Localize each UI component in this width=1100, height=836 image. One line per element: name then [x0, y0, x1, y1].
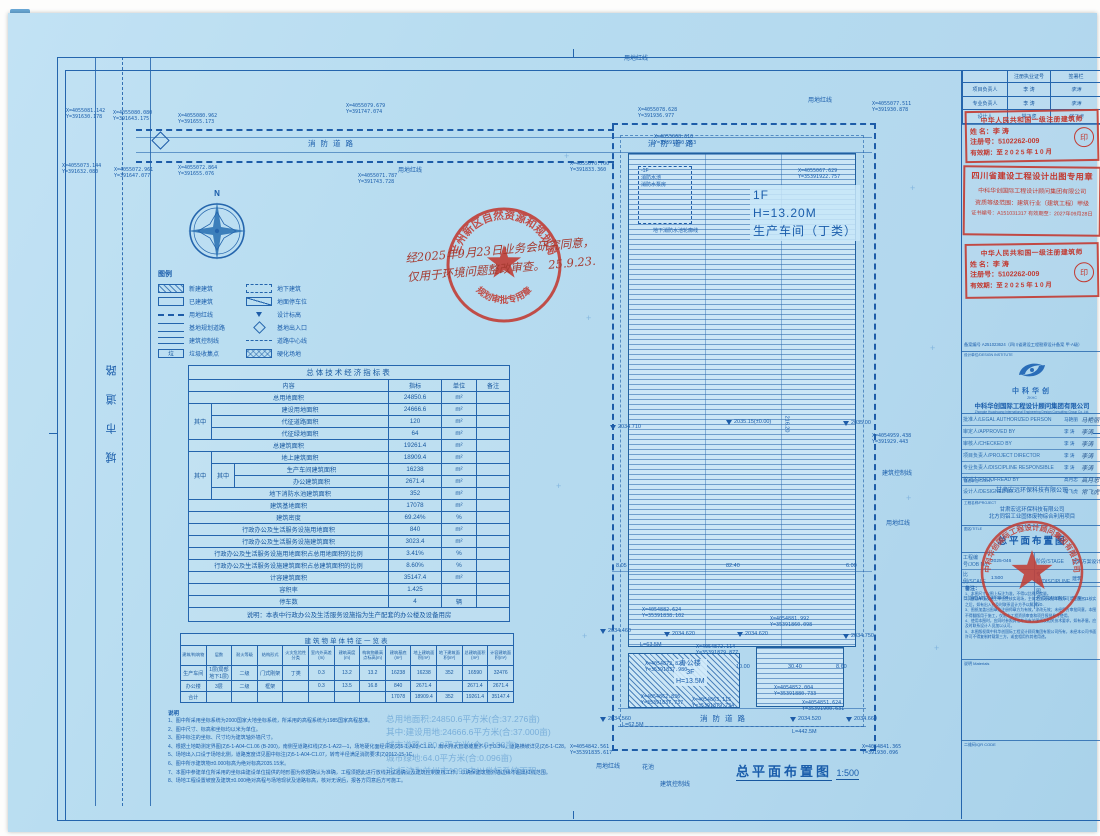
indicators-table: 总体技术经济指标表 内容 指标 单位 备注 总用地面积24850.6m² 其中建… — [188, 365, 510, 622]
coordinate-label: X=4055073.144Y=391632.080 — [62, 163, 101, 175]
survey-cross-icon: + — [910, 183, 915, 193]
workshop-floor: 1F — [753, 186, 857, 204]
coordinate-label: X=4054852.004Y=35391880.733 — [774, 685, 816, 697]
hardened-ground-symbol — [246, 349, 272, 358]
signature-rows: 批准人/LEGAL AUTHORIZED PERSON马艳丽马艳丽 审定人/AP… — [962, 414, 1100, 478]
legend: 图例 新建建筑 地下建筑 已建建筑 地面停车位 用地红线 设计标高 基地规划道路… — [158, 269, 348, 360]
title-block: 注册执业证号签署栏 项目负责人李 涛李涛 专业负责人李 涛李涛 设计人常飞虎常飞… — [961, 70, 1100, 819]
pump-room-label: 消防水泵房 — [641, 182, 689, 189]
coordinate-label: X=4054872.114Y=35391879.877 — [696, 644, 738, 656]
blueprint-sheet: 城市道路 1F H=13.20M 生产车间（丁类） -1F 消防水池 消防水泵 — [8, 13, 1097, 832]
materials-section: 说明 Materials — [962, 660, 1100, 741]
workshop-label: 1F H=13.20M 生产车间（丁类） — [750, 185, 860, 241]
pool-outline-callout: 地下消防水池轮廓线 — [653, 227, 698, 234]
client-section: 建设单位/CLIENT 甘肃宏远环保科技有限公司 — [962, 478, 1100, 500]
architect-seal-icon: 印 — [1074, 262, 1094, 282]
legend-item: 用地红线 — [158, 308, 246, 321]
legend-item: 垃垃圾收集点 — [158, 347, 246, 360]
spot-elevation: 2034.750 — [851, 633, 874, 639]
client-name: 甘肃宏远环保科技有限公司 — [962, 485, 1100, 494]
spot-elevation: 2034.620 — [672, 631, 695, 637]
coordinate-label: X=4055072.961Y=391647.077 — [114, 167, 153, 179]
svg-text:规划审批专用章: 规划审批专用章 — [474, 284, 533, 305]
red-line-label: 用地红线 — [886, 518, 910, 527]
road-centerline-symbol — [246, 340, 272, 341]
legend-item: 地下建筑 — [246, 282, 342, 295]
length-label: L=62.5M — [622, 722, 644, 728]
buildings-title: 建筑物单体特征一览表 — [181, 634, 514, 646]
coordinate-label: X=4055080.962Y=391655.173 — [178, 113, 217, 125]
sichuan-design-output-seal: 四川省建设工程设计出图专用章 中科华创国际工程设计顾问集团有限公司 资质等级范围… — [963, 165, 1100, 236]
buildings-table: 建筑物单体特征一览表 建筑/构筑物 层数 耐火等级 结构形式 火灾危险性分类 室… — [180, 633, 514, 703]
frame-tick — [573, 49, 574, 57]
coordinate-label: X=4054841.365Y=391930.096 — [862, 744, 901, 756]
workshop-name: 生产车间（丁类） — [753, 222, 857, 240]
area-summary-note: 总用地面积:24850.6平方米(合:37.276亩) 其中:建设用地:2466… — [386, 713, 606, 778]
red-line-symbol — [158, 314, 184, 316]
city-road-label: 城市道路 — [104, 283, 120, 463]
qr-code-section: 二维码/QR CODE — [962, 741, 1100, 819]
coordinate-label: X=4054872.828Y=35391837.980 — [645, 661, 687, 673]
coordinate-label: X=4054959.438Y=391929.443 — [872, 433, 911, 445]
dimension: 8.05 — [616, 563, 627, 569]
spot-elevation: 2034.560 — [608, 716, 631, 722]
spot-elevation: 2034.620 — [745, 631, 768, 637]
legend-item: 硬化场地 — [246, 347, 342, 360]
length-label: L=442.5M — [792, 729, 817, 735]
dimension: 216.20 — [783, 416, 789, 433]
frame-tick — [573, 811, 574, 819]
site-entrance-symbol — [246, 323, 272, 332]
legend-item: 基地规划道路 — [158, 321, 246, 334]
coordinate-label: X=4055067.629Y=35391922.757 — [798, 168, 840, 180]
coordinate-label: X=4054882.624Y=35391838.102 — [642, 607, 684, 619]
spot-elevation: 2034.520 — [798, 716, 821, 722]
signature: 李涛 — [1080, 438, 1100, 450]
spot-elevation: 2034.710 — [618, 424, 641, 430]
south-fire-road-edge — [618, 726, 866, 727]
fire-road-label: 消防道路 — [308, 138, 358, 149]
flower-bed-label: 花池 — [642, 762, 654, 771]
coordinate-label: X=4055078.628Y=391936.977 — [638, 107, 677, 119]
dimension: 30.40 — [788, 664, 802, 670]
record-number: 备案编号 A251023624（四川省建设工程勘察设计备案 甲·A级） — [962, 338, 1100, 352]
dimension: 82.40 — [726, 563, 740, 569]
coordinate-label: X=4055080.080Y=391643.175 — [113, 110, 152, 122]
workshop-lower-lobe — [756, 647, 844, 707]
planned-road-symbol — [158, 323, 184, 332]
coordinate-label: X=4054851.624Y=35391900.631 — [802, 700, 844, 712]
architect-registration-stamp: 中华人民共和国一级注册建筑师 姓 名：李 涛 注册号：5102262-009 有… — [965, 109, 1100, 163]
legend-title: 图例 — [158, 269, 348, 279]
workshop-height: H=13.20M — [753, 204, 857, 222]
spot-elevation: 2035.15(±0.00) — [734, 419, 771, 425]
coordinate-label: X=4055070.700Y=391833.360 — [570, 161, 609, 173]
underground-building-symbol — [246, 284, 272, 293]
survey-cross-icon: + — [934, 643, 939, 653]
plan-scale: 1:500 — [836, 768, 859, 780]
table-row: 办公楼3层二级框架0.313.516.88402671.42671.42671.… — [181, 681, 514, 692]
signature: 李涛 — [1080, 450, 1100, 462]
scanned-blueprint-canvas: 城市道路 1F H=13.20M 生产车间（丁类） -1F 消防水池 消防水泵 — [0, 0, 1100, 836]
length-label: L=63.5M — [640, 642, 662, 648]
dimension: 6.00 — [846, 563, 857, 569]
control-line-symbol — [158, 337, 184, 344]
survey-cross-icon: + — [582, 631, 587, 641]
north-compass: N — [184, 189, 250, 265]
frame-tick — [49, 433, 57, 434]
table-row: 合计1707818909.435219261.435147.4 — [181, 692, 514, 703]
legend-item: 已建建筑 — [158, 295, 246, 308]
red-line-label: 用地红线 — [624, 53, 648, 62]
dimension: 8.60 — [836, 664, 847, 670]
spot-elevation: 2034.660 — [854, 716, 877, 722]
logo-subtext: ZKHC — [962, 396, 1100, 400]
office-height: H=13.5M — [676, 677, 705, 686]
parking-symbol — [246, 297, 272, 306]
plan-title: 总平面布置图 1:500 — [736, 761, 859, 781]
survey-cross-icon: + — [930, 343, 935, 353]
survey-cross-icon: + — [556, 481, 561, 491]
signature: 李涛 — [1080, 426, 1100, 438]
company-logo-icon — [1015, 359, 1049, 381]
design-institute: 设计单位/DESIGN INSTITUTE 中科华创 ZKHC 中科华创国际工程… — [962, 352, 1100, 414]
spot-elevation: 2035.00 — [851, 420, 871, 426]
coordinate-label: X=4055079.679Y=391747.074 — [346, 103, 385, 115]
logo-text: 中科华创 — [962, 386, 1100, 396]
survey-cross-icon: + — [906, 493, 911, 503]
coordinate-label: X=4055068.610Y=35391840.363 — [654, 134, 696, 146]
legend-item: 建筑控制线 — [158, 334, 246, 347]
survey-cross-icon: + — [564, 151, 569, 161]
fire-pool-label: 消防水池 — [641, 175, 689, 182]
spot-elevation: 2034.460 — [608, 628, 631, 634]
coordinate-label: X=4054881.992Y=35391860.098 — [770, 616, 812, 628]
legend-item: 设计标高 — [246, 308, 342, 321]
coordinate-label: X=4054863.115Y=35391879.734 — [692, 697, 734, 709]
company-round-seal: 中科华创国际工程设计顾问集团有限公司 — [978, 518, 1086, 626]
trash-point-symbol: 垃 — [158, 349, 184, 358]
north-label: N — [184, 189, 250, 198]
signature: 马艳丽 — [1080, 414, 1100, 426]
control-line-label: 建筑控制线 — [882, 468, 912, 477]
architect-registration-stamp: 中华人民共和国一级注册建筑师 姓 名：李 涛 注册号：5102262-009 有… — [965, 242, 1100, 299]
legend-item: 基地出入口 — [246, 321, 342, 334]
indicators-footnote: 说明：本表中行政办公及生活服务设施指为生产配套的办公楼及设备用房 — [189, 608, 510, 622]
dimension: 10.00 — [736, 664, 750, 670]
indicators-title: 总体技术经济指标表 — [189, 366, 510, 380]
company-name-cn: 中科华创国际工程设计顾问集团有限公司 — [962, 401, 1100, 410]
survey-cross-icon: + — [586, 313, 591, 323]
legend-item: 新建建筑 — [158, 282, 246, 295]
coordinate-label: X=4054862.836Y=35391837.737 — [641, 694, 683, 706]
signature: 李涛 — [1080, 462, 1100, 474]
pool-floor-label: -1F — [641, 168, 689, 175]
signature: 李涛 — [1051, 83, 1100, 97]
fire-road-label: 消防道路 — [700, 713, 750, 724]
coordinate-label: X=4055077.511Y=391930.878 — [872, 101, 911, 113]
legend-item: 道路中心线 — [246, 334, 342, 347]
red-line-label: 用地红线 — [808, 95, 832, 104]
legend-item: 地面停车位 — [246, 295, 342, 308]
coordinate-label: X=4055071.787Y=391743.728 — [358, 173, 397, 185]
dimension-line — [612, 571, 872, 572]
red-line-corridor — [136, 129, 614, 163]
underground-fire-pool: -1F 消防水池 消防水泵房 — [638, 166, 692, 224]
design-elevation-symbol — [246, 310, 272, 319]
existing-building-symbol — [158, 297, 184, 306]
coordinate-label: X=4055072.864Y=391655.076 — [178, 165, 217, 177]
stamp-banner-text: 规划审批专用章 — [474, 284, 533, 305]
red-line-label: 用地红线 — [398, 165, 422, 174]
new-building-symbol — [158, 284, 184, 293]
coordinate-label: X=4055081.142Y=391630.178 — [66, 108, 105, 120]
table-row: 生产车间1层(局部地下1层)二级门式刚架丁类0.313.213.21623816… — [181, 666, 514, 681]
compass-rose-icon — [184, 198, 250, 264]
control-line-label: 建筑控制线 — [660, 779, 690, 788]
